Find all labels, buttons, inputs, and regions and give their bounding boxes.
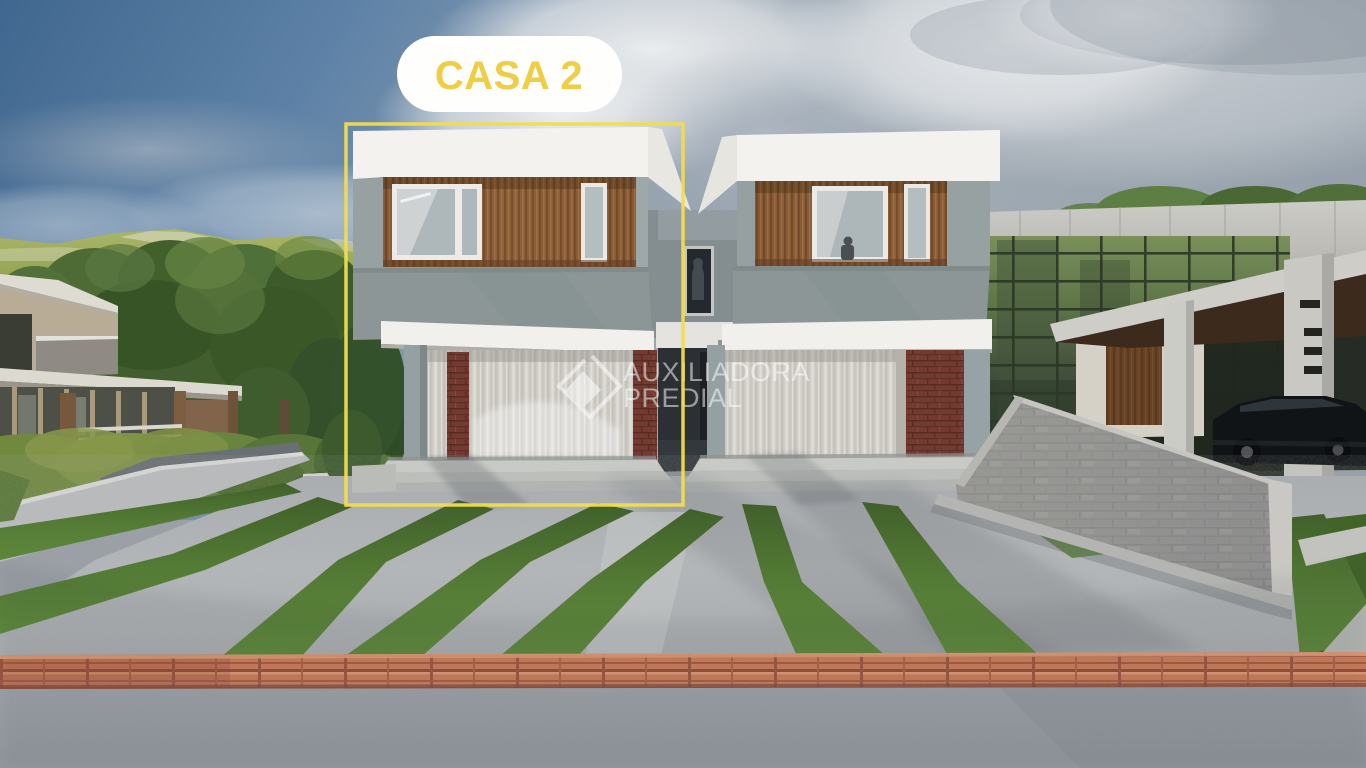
svg-text:CASA 2: CASA 2 — [435, 54, 583, 98]
